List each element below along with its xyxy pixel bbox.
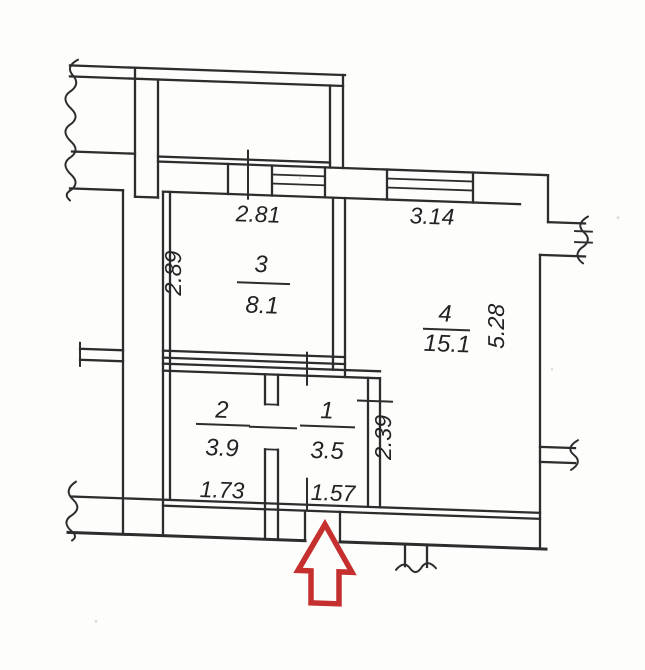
floor-plan: 3 8.1 4 15.1 2 3.9 1 3.5 2.81 2.89 3.14 … [0, 0, 645, 670]
windows [158, 162, 548, 206]
dim-room3-height: 2.89 [160, 250, 186, 297]
room-4-area: 15.1 [424, 330, 471, 359]
room-1-number: 1 [320, 397, 333, 424]
break-bottom-stub [396, 562, 436, 573]
break-top-left [65, 59, 78, 200]
dim-room3-width: 2.81 [235, 200, 281, 228]
dim-room1-width: 1.57 [311, 479, 357, 507]
dim-room4-height: 5.28 [483, 303, 509, 349]
room-1-area: 3.5 [310, 437, 344, 465]
dim-room2-width: 1.73 [200, 476, 245, 504]
room-3-number: 3 [254, 251, 268, 278]
floor-plan-page: 3 8.1 4 15.1 2 3.9 1 3.5 2.81 2.89 3.14 … [0, 0, 645, 670]
room-2-number: 2 [214, 396, 228, 423]
room-4-number: 4 [438, 300, 451, 327]
break-right-mid-stub [570, 440, 578, 470]
dim-room1-height: 2.39 [370, 414, 396, 461]
room-2-area: 3.9 [205, 434, 238, 462]
room-3-area: 8.1 [245, 292, 278, 320]
dim-room4-width: 3.14 [410, 202, 455, 230]
